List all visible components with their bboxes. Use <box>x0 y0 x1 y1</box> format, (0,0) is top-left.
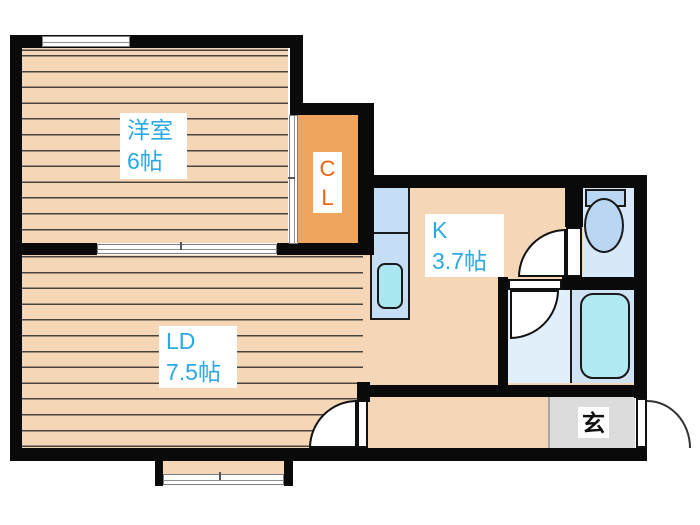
wall-bay-right <box>284 461 293 486</box>
wall-kitchen-top <box>358 175 647 188</box>
western-room-size: 6帖 <box>127 146 187 177</box>
window-western-room <box>42 36 130 47</box>
wall-hall-door-jamb <box>357 382 370 402</box>
western-room-name: 洋室 <box>127 115 187 146</box>
sliding-door-western-ld <box>97 244 277 254</box>
wall-bath-left <box>498 277 508 397</box>
wall-toilet-left <box>565 175 583 227</box>
entrance-label: 玄 <box>578 407 609 438</box>
wall-bay-left <box>155 461 163 486</box>
kitchen-name: K <box>432 215 504 246</box>
toilet-door-leaf <box>566 227 582 277</box>
wall-bath-top <box>562 277 647 290</box>
living-dining-size: 7.5帖 <box>166 357 237 388</box>
wall-room-divider-right <box>277 243 374 255</box>
wall-room-divider-left <box>10 243 97 255</box>
entrance-name: 玄 <box>578 409 609 437</box>
living-dining-name: LD <box>166 326 237 357</box>
bathroom-door-leaf <box>508 279 562 290</box>
closet-label-line2: L <box>313 183 342 212</box>
kitchen-sink-icon <box>377 263 403 309</box>
wall-kitchen-bottom <box>358 385 647 397</box>
floor-plan: 洋室 6帖 C L K 3.7帖 LD 7.5帖 玄 <box>0 0 700 525</box>
entrance-door-leaf <box>636 398 647 448</box>
counter-divider <box>372 232 408 234</box>
kitchen-size: 3.7帖 <box>432 246 504 277</box>
closet-label-line1: C <box>313 154 342 183</box>
window-bay <box>163 474 284 485</box>
closet-label: C L <box>313 152 342 213</box>
living-dining-label: LD 7.5帖 <box>159 326 237 388</box>
entrance-door-swing-arc <box>647 400 691 448</box>
kitchen-label: K 3.7帖 <box>425 214 504 277</box>
sliding-door-closet <box>289 115 298 244</box>
hallway-door-leaf <box>357 400 368 448</box>
western-room-label: 洋室 6帖 <box>120 113 187 179</box>
bathtub-icon <box>580 293 630 379</box>
toilet-bowl-icon <box>584 198 624 253</box>
wall-bottom <box>10 448 647 461</box>
